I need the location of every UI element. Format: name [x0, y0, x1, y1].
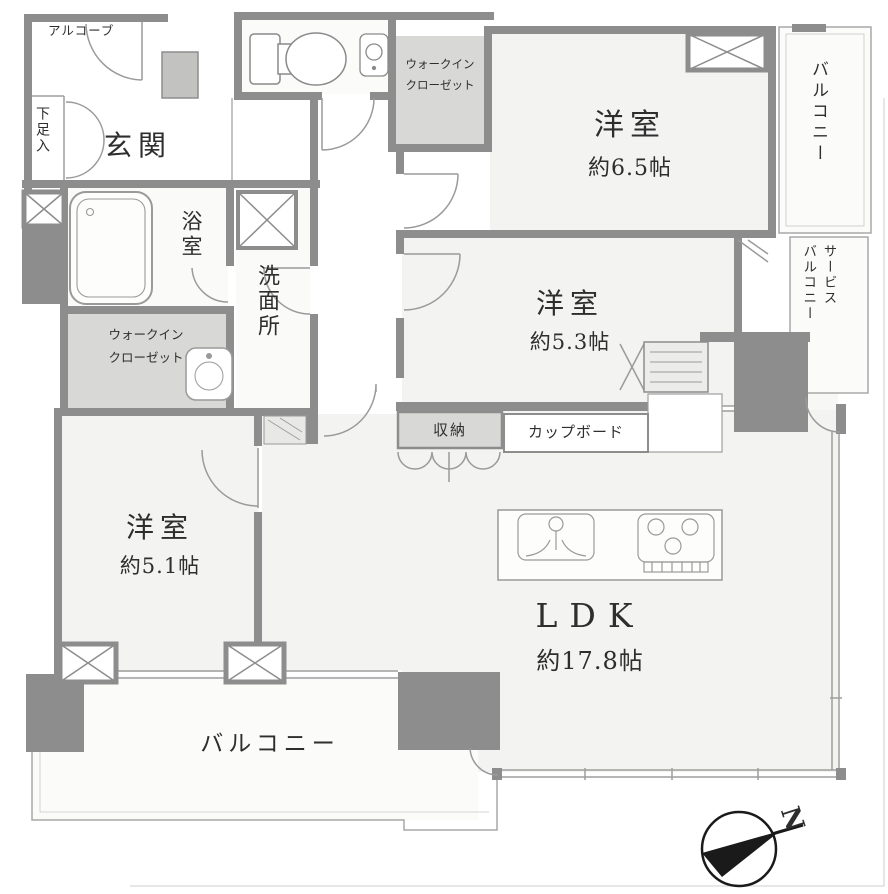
washroom-label: 洗面所 — [250, 264, 282, 339]
balcony-right-label: バルコニー — [806, 60, 831, 165]
balcony-bottom-label: バルコニー — [160, 724, 380, 758]
floorplan: アルコーブ 下足入 玄関 ウォークイン クローゼット 洋室 約6.5帖 バルコニ… — [0, 0, 888, 894]
toilet-door — [322, 98, 374, 150]
storage-label: 収納 — [398, 419, 502, 440]
entrance-label: 玄関 — [104, 124, 172, 164]
bedroom2-label: 洋室 約5.3帖 — [440, 282, 700, 356]
corner-hatch — [738, 240, 768, 262]
kitchen-counter — [498, 510, 722, 580]
service-balcony-label: サービス バルコニー — [798, 244, 839, 394]
meter-box — [162, 52, 198, 98]
ldk-label: LDK 約17.8帖 — [460, 596, 720, 676]
alcove-label: アルコーブ — [48, 20, 114, 39]
shoe-cabinet-label: 下足入 — [32, 106, 52, 154]
bathtub — [70, 192, 152, 304]
cupboard-label: カップボード — [504, 421, 648, 442]
pillar-washroom — [238, 192, 296, 248]
toilet-sink — [360, 34, 388, 76]
washer-pan — [264, 416, 306, 444]
wic-left-label: ウォークイン クローゼット — [64, 324, 228, 369]
shoe-cabinet-doors — [66, 102, 104, 178]
pillar-left — [24, 192, 64, 226]
bedroom3-label: 洋室 約5.1帖 — [40, 506, 280, 580]
pillar-balcony-a — [60, 644, 116, 682]
toilet — [250, 33, 346, 85]
wic-top-label: ウォークイン クローゼット — [394, 54, 486, 95]
bathroom-label: 浴室 — [176, 210, 206, 260]
bedroom1-label: 洋室 約6.5帖 — [500, 100, 760, 182]
hall-upper-door — [404, 174, 458, 228]
pillar-balcony-b — [226, 644, 284, 682]
refrigerator-space — [648, 394, 722, 452]
pillar-bedroom1 — [688, 34, 766, 70]
